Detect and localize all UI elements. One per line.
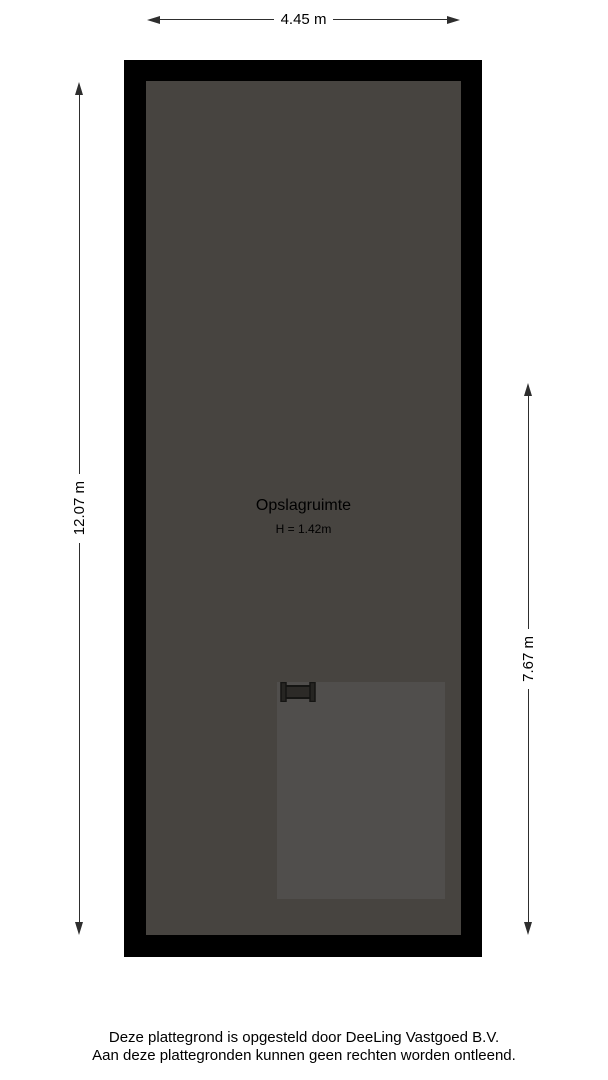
disclaimer-line-1: Deze plattegrond is opgesteld door DeeLi… — [0, 1029, 608, 1047]
floorplan-page: 4.45 m 12.07 m 7.67 m Opslagruimte H = 1… — [0, 0, 608, 1080]
arrowhead-down-icon — [75, 922, 83, 935]
arrowhead-left-icon — [147, 16, 160, 24]
dimension-line — [333, 19, 447, 20]
footer-disclaimer: Deze plattegrond is opgesteld door DeeLi… — [0, 1029, 608, 1065]
room-ceiling-height-label: H = 1.42m — [146, 523, 461, 536]
dimension-top-width: 4.45 m — [147, 12, 460, 27]
disclaimer-line-2: Aan deze plattegronden kunnen geen recht… — [0, 1047, 608, 1065]
room-opslagruimte: Opslagruimte H = 1.42m — [146, 81, 461, 935]
dimension-line — [528, 396, 529, 629]
dimension-line — [160, 19, 274, 20]
dimension-left-height-label: 12.07 m — [72, 474, 87, 542]
room-label-block: Opslagruimte H = 1.42m — [146, 497, 461, 536]
dimension-line — [528, 689, 529, 922]
arrowhead-down-icon — [524, 922, 532, 935]
room-name-label: Opslagruimte — [146, 497, 461, 515]
outer-wall: Opslagruimte H = 1.42m — [124, 60, 482, 957]
arrowhead-up-icon — [75, 82, 83, 95]
dimension-right-height-label: 7.67 m — [521, 629, 536, 689]
radiator-icon — [280, 682, 316, 702]
arrowhead-right-icon — [447, 16, 460, 24]
dimension-top-width-label: 4.45 m — [274, 12, 334, 27]
dimension-right-height: 7.67 m — [517, 383, 539, 935]
dimension-line — [79, 95, 80, 474]
dimension-line — [79, 543, 80, 922]
arrowhead-up-icon — [524, 383, 532, 396]
dimension-left-height: 12.07 m — [68, 82, 90, 935]
lower-floor-area — [277, 682, 445, 899]
